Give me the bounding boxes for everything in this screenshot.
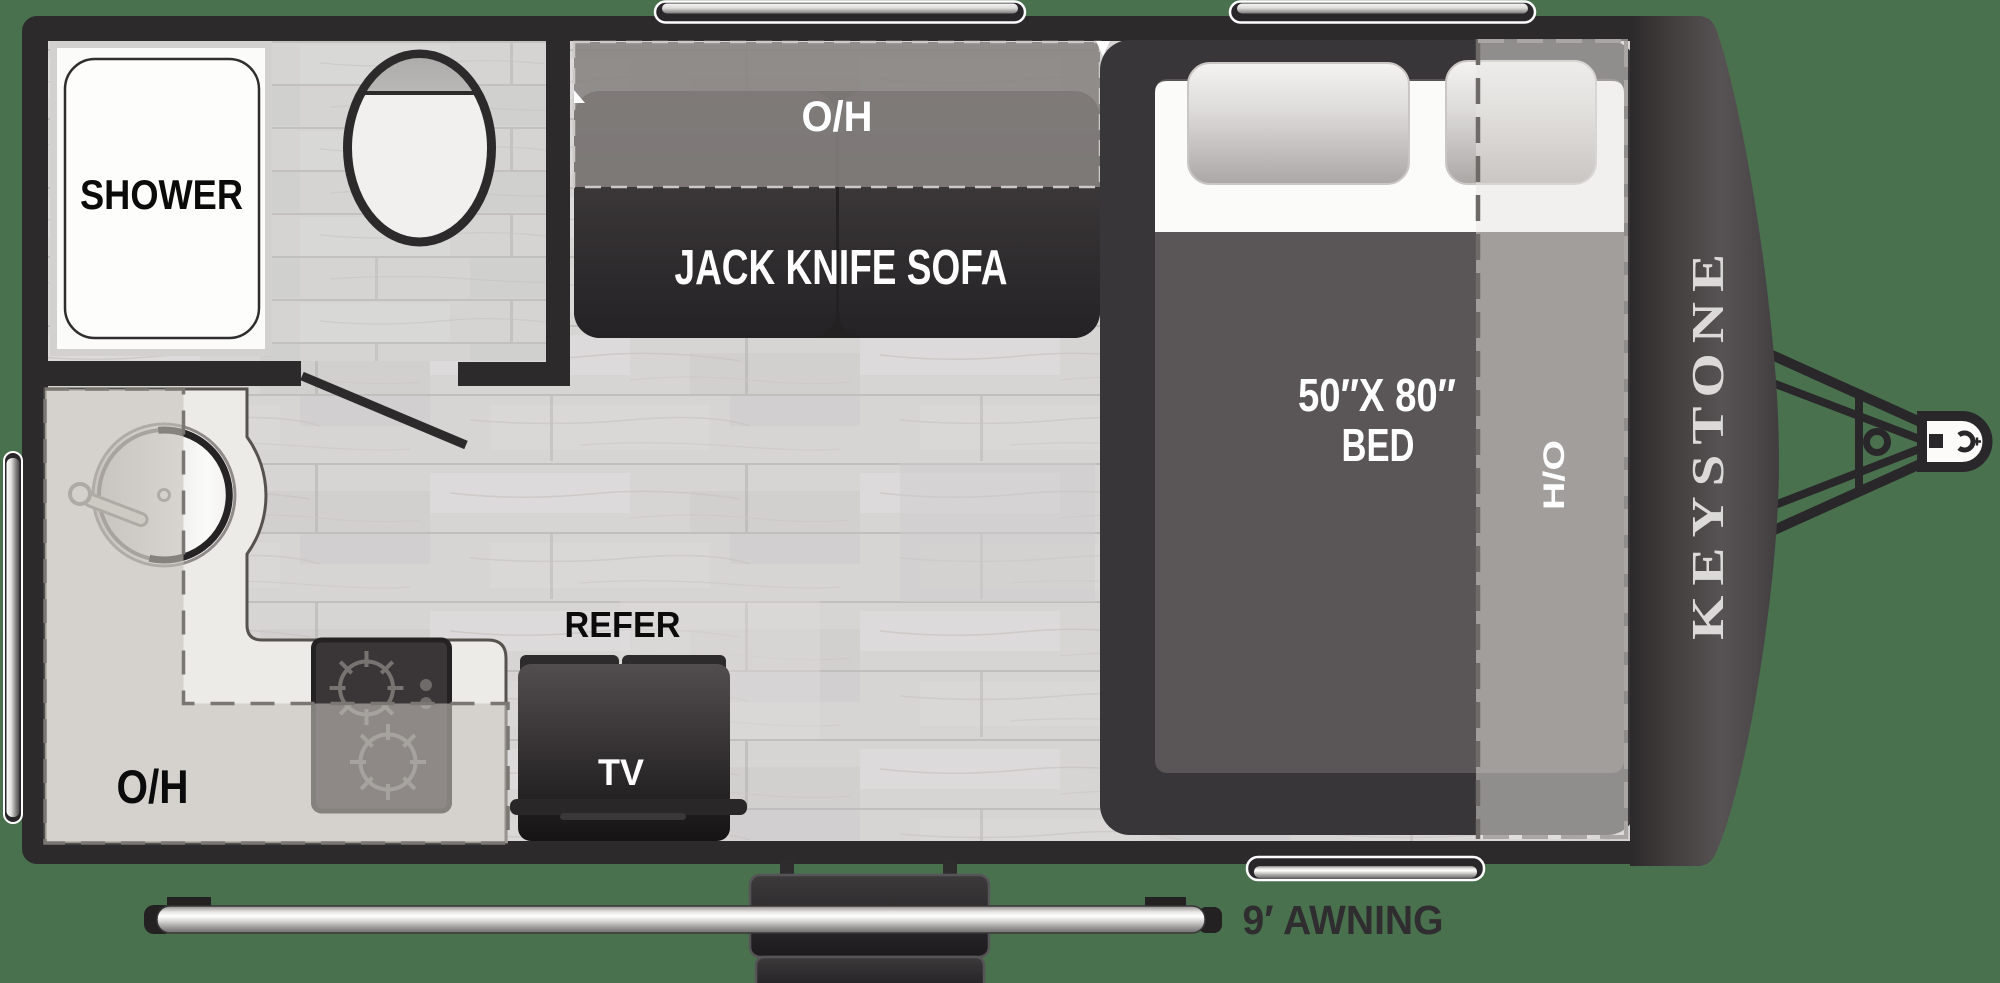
svg-text:O/H: O/H [802,93,873,141]
svg-text:O/H: O/H [117,760,189,813]
svg-text:SHOWER: SHOWER [80,171,243,218]
svg-text:50″X 80″: 50″X 80″ [1298,369,1456,421]
svg-text:KEYSTONE: KEYSTONE [1682,244,1733,640]
svg-text:TV: TV [598,752,644,793]
svg-text:JACK KNIFE SOFA: JACK KNIFE SOFA [675,241,1008,295]
svg-text:REFER: REFER [565,604,681,645]
svg-text:H/O: H/O [1538,440,1571,510]
svg-text:9′ AWNING: 9′ AWNING [1243,897,1444,943]
svg-text:BED: BED [1342,419,1415,471]
